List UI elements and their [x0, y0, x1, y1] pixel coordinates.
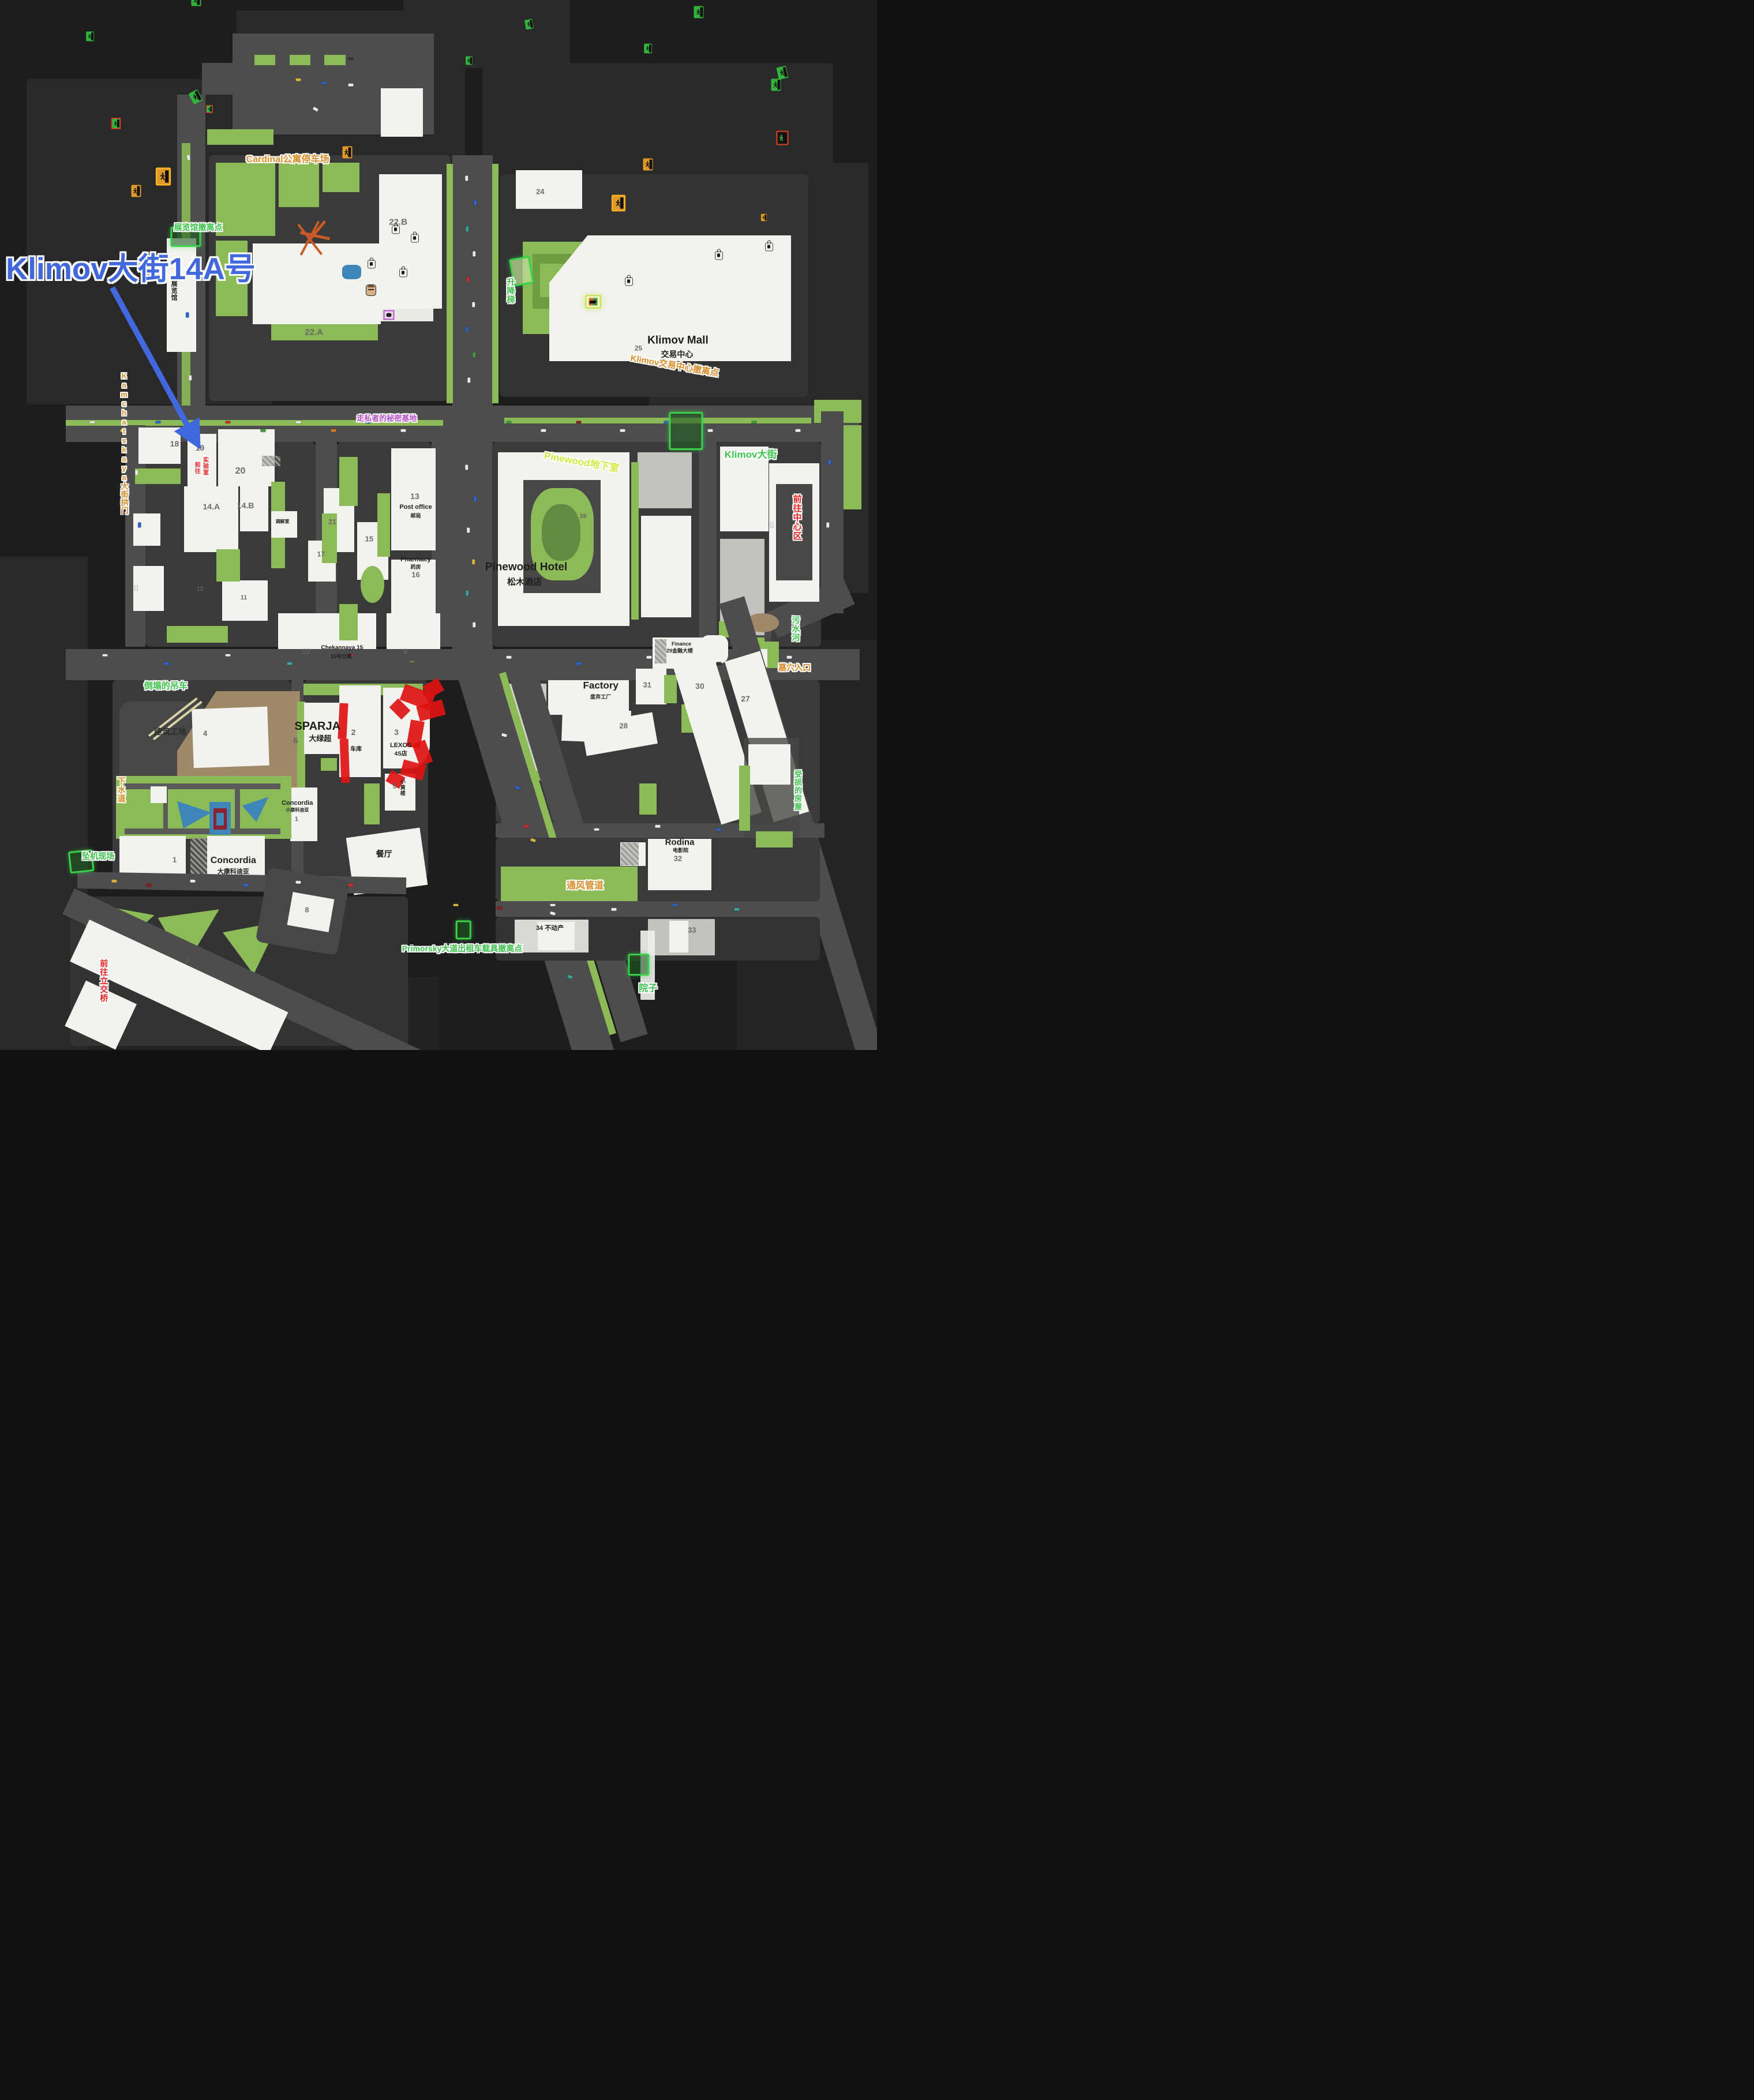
map-shape [361, 566, 384, 603]
map-label: 21 [328, 518, 336, 526]
vehicle [295, 421, 301, 423]
map-label: 邮局 [410, 513, 421, 519]
map-shape [339, 457, 358, 507]
vehicle [468, 377, 471, 382]
map-label: 废弃工厂 [590, 694, 611, 700]
map-label: 建筑工地 [154, 727, 186, 737]
map-label: 15 [365, 535, 373, 544]
vehicle [134, 586, 137, 591]
extract-icon-green [206, 105, 213, 113]
vehicle [796, 429, 801, 432]
vehicle [348, 884, 353, 887]
map-label: SPARJA [294, 720, 340, 733]
map-shape [271, 511, 298, 538]
extract-icon-green [466, 57, 473, 65]
map-shape [235, 783, 239, 834]
vehicle [473, 302, 475, 307]
map-label: Post office [399, 504, 432, 511]
map-shape [125, 783, 281, 789]
map-label: 小黄楼 [400, 779, 406, 796]
map-label: Pinewood Hotel [485, 561, 568, 573]
map-label: 17 [317, 550, 325, 558]
map-label: 小康科迪亚 [286, 808, 309, 813]
map-label: 33 [688, 926, 696, 935]
map-label: 10 [302, 648, 310, 657]
map-label: 28 [619, 722, 627, 731]
map-label: LEXOS [390, 742, 411, 749]
map-label: 25 [635, 345, 642, 352]
lock-icon [399, 269, 407, 277]
boss-icon [366, 284, 376, 296]
map-shape [447, 164, 453, 403]
map-label: 前往立交桥 [99, 959, 108, 1002]
map-label: 4 [203, 730, 207, 738]
extract-icon-green [86, 32, 94, 42]
vehicle [261, 429, 266, 432]
map-label: 电影院 [673, 847, 688, 853]
map-label: 墓穴入口 [778, 663, 811, 673]
vehicle [103, 654, 108, 657]
map-label: 坠机现场 [82, 852, 114, 861]
vehicle [187, 155, 190, 160]
trader-basement-icon [585, 295, 601, 309]
map-shape [207, 129, 274, 145]
vehicle [474, 496, 477, 501]
map-label: Finance [672, 641, 691, 647]
extract-icon-green [111, 118, 121, 129]
map-label: Klimov大街 [725, 449, 777, 460]
vehicle [576, 421, 582, 423]
map-label: 1 [295, 815, 298, 822]
vehicle [226, 421, 231, 423]
map-shape [262, 456, 280, 466]
vehicle [190, 880, 196, 883]
extract-icon-orange [156, 167, 171, 185]
extract-icon-green [191, 0, 201, 6]
map-shape [339, 739, 350, 783]
map-label: Klimov Mall [647, 334, 709, 346]
map-label: 8 [305, 906, 309, 915]
vehicle [787, 656, 792, 659]
map-label: 30 [695, 682, 704, 691]
map-shape [290, 787, 317, 841]
map-label: 34 不动产 [536, 925, 564, 932]
vehicle [348, 84, 354, 87]
extract-zone [628, 954, 650, 976]
map-shape [377, 493, 391, 556]
map-shape [739, 766, 749, 831]
map-label: 18 [170, 440, 179, 449]
map-shape [669, 921, 688, 952]
annotation-title: Klimov大街14A号 [6, 245, 256, 288]
map-label: 13 [410, 492, 419, 501]
vehicle [287, 662, 292, 665]
map-label: 下水道 [117, 777, 126, 802]
vehicle [673, 904, 678, 907]
vehicle [190, 429, 196, 432]
map-label: 通风管道 [567, 881, 604, 891]
map-label: 受损的房屋 [793, 770, 801, 811]
map-label: 餐厅 [376, 850, 392, 860]
map-shape [516, 170, 583, 209]
map-shape [271, 322, 378, 340]
map-label: 12 [196, 586, 203, 592]
map-shape [621, 843, 638, 865]
lock-icon [411, 234, 419, 243]
map-label: 11 [241, 594, 248, 601]
map-shape [133, 513, 160, 546]
map-shape [279, 163, 319, 207]
map-label: 倒塌的吊车 [144, 682, 188, 692]
map-shape [387, 613, 440, 652]
map-label: 20 [235, 466, 246, 477]
map-shape [638, 452, 692, 508]
map-shape [631, 462, 639, 620]
vehicle [466, 327, 469, 332]
map-label: 大康科迪亚 [218, 868, 249, 875]
map-label: 2 [351, 729, 356, 738]
map-shape [216, 549, 240, 582]
map-label: Concordia [211, 856, 256, 866]
map-shape [542, 504, 580, 561]
vehicle [770, 522, 774, 528]
map-shape [639, 783, 657, 815]
map-label: 展览馆撤离点 [174, 223, 223, 232]
map-label: 大绿超 [309, 735, 331, 744]
vehicle [550, 904, 555, 907]
vehicle [465, 176, 468, 181]
extract-zone [669, 412, 703, 450]
map-label: 22.A [305, 328, 323, 338]
map-label: Rodina [665, 838, 695, 848]
vehicle [155, 421, 160, 423]
vehicle [473, 252, 476, 257]
vehicle [473, 559, 475, 564]
map-shape [216, 163, 275, 236]
vehicle [466, 591, 469, 596]
map-label: 4S店 [395, 751, 407, 757]
lock-icon [625, 277, 633, 286]
map-shape [655, 639, 666, 663]
vehicle [467, 277, 470, 282]
extract-zone [456, 920, 471, 939]
vehicle [243, 884, 248, 887]
vehicle [655, 825, 661, 828]
vehicle [322, 82, 327, 85]
vehicle [186, 313, 189, 318]
map-label: 药房 [410, 564, 421, 570]
smuggler-base-icon [384, 310, 395, 320]
extract-icon-orange [131, 185, 141, 197]
map-shape [492, 164, 499, 403]
vehicle [473, 352, 476, 358]
map-shape [216, 813, 224, 826]
map-label: 16 [411, 571, 419, 580]
map-shape [496, 901, 824, 917]
map-shape [364, 783, 380, 824]
vehicle [410, 660, 415, 663]
map-label: 1 [173, 856, 177, 864]
map-label: 交易中心 [661, 350, 693, 359]
map-label: Primorsky大道出租车载具撤离点 [402, 944, 522, 954]
vehicle [541, 429, 546, 432]
map-label: 22.B [389, 217, 407, 227]
map-label: 26 [580, 513, 587, 520]
lock-icon [368, 260, 376, 269]
vehicle [734, 908, 739, 911]
vehicle [752, 421, 757, 423]
tarkov-streets-map: Cardinal公寓停车场展览馆撤离点展览馆22.B2422.A升降梯25Kli… [0, 0, 877, 1050]
map-label: 32 [674, 854, 682, 863]
map-shape [641, 516, 691, 618]
map-shape [756, 831, 793, 847]
extract-icon-green [644, 44, 652, 54]
vehicle [295, 78, 301, 81]
map-label: 19 [196, 444, 205, 453]
map-label: 升降梯 [506, 278, 515, 304]
vehicle [473, 622, 476, 627]
map-shape [290, 55, 310, 65]
map-shape [254, 55, 275, 65]
map-label: 前往 [193, 462, 200, 474]
lock-icon [765, 243, 773, 252]
map-label: 5 [393, 782, 397, 790]
map-label: 3 [394, 729, 399, 738]
map-label: 9 [403, 648, 407, 657]
map-shape [184, 486, 238, 553]
map-label: 院子 [639, 984, 657, 994]
map-label: Pharmacy [400, 556, 431, 563]
map-shape [133, 566, 164, 611]
map-label: 14.A [203, 502, 220, 512]
vehicle [506, 656, 511, 659]
lock-icon [715, 252, 723, 260]
map-shape [748, 744, 790, 784]
map-label: 6 [293, 737, 298, 747]
vehicle [401, 429, 406, 432]
map-label: 24 [536, 188, 544, 197]
vehicle [89, 421, 95, 423]
map-shape [339, 604, 358, 641]
map-label: Cardinal公寓停车场 [246, 155, 329, 165]
vehicle [620, 429, 625, 432]
vehicle [506, 421, 511, 423]
map-shape [323, 163, 359, 192]
extract-icon-orange [761, 214, 767, 222]
vehicle [497, 907, 503, 910]
map-shape [321, 758, 336, 771]
map-label: Factory [583, 680, 618, 691]
map-shape [167, 626, 228, 643]
vehicle [466, 226, 469, 231]
map-shape [125, 828, 281, 834]
map-shape [699, 442, 716, 647]
map-label: 29金融大楼 [666, 648, 693, 654]
vehicle [348, 58, 354, 61]
vehicle [717, 662, 722, 665]
vehicle [465, 464, 468, 470]
map-shape [324, 55, 345, 65]
map-label: 调解室 [275, 519, 289, 524]
vehicle [189, 376, 192, 381]
map-label: 松木酒店 [507, 578, 542, 588]
vehicle [828, 459, 831, 464]
vehicle [226, 654, 231, 657]
vehicle [164, 662, 169, 665]
vehicle [826, 522, 829, 527]
vehicle [594, 828, 599, 831]
vehicle [717, 828, 722, 831]
map-label: 15号公寓 [331, 653, 352, 659]
map-label: 前往中心区 [792, 494, 801, 541]
vehicle [646, 656, 651, 659]
extract-icon-orange [612, 195, 625, 212]
vehicle [136, 470, 138, 475]
extract-icon-locked [776, 131, 788, 145]
vehicle [454, 904, 459, 907]
vehicle [138, 522, 141, 527]
vehicle [331, 429, 336, 432]
vehicle [474, 200, 477, 205]
map-label: Concordia [282, 800, 313, 807]
vehicle [576, 662, 582, 665]
extract-icon-orange [643, 159, 653, 171]
map-label: 27 [741, 695, 750, 704]
map-shape [504, 418, 811, 423]
map-label: Chekannaya 15 [321, 644, 363, 651]
map-label: 走私者的秘密基地 [357, 415, 417, 423]
map-label: 14.B [237, 501, 254, 511]
map-shape [151, 786, 166, 803]
map-shape [381, 88, 423, 137]
extract-icon-green [694, 6, 704, 18]
map-label: 车库 [350, 747, 362, 753]
map-shape [664, 675, 677, 703]
vehicle [708, 429, 713, 432]
map-label: 31 [643, 681, 651, 690]
map-shape [135, 468, 181, 484]
vehicle [147, 884, 152, 887]
map-shape [342, 265, 361, 279]
extract-icon-orange [342, 147, 352, 159]
map-shape [202, 63, 377, 95]
map-label: Kamchatskaya大街拱门 [119, 372, 128, 515]
vehicle [111, 880, 117, 883]
vehicle [467, 528, 470, 533]
vehicle [612, 908, 617, 911]
map-label: 污水河 [791, 616, 800, 642]
extract-icon-green [771, 79, 781, 91]
vehicle [295, 880, 301, 883]
vehicle [524, 825, 529, 828]
map-label: 实验室 [201, 457, 208, 476]
